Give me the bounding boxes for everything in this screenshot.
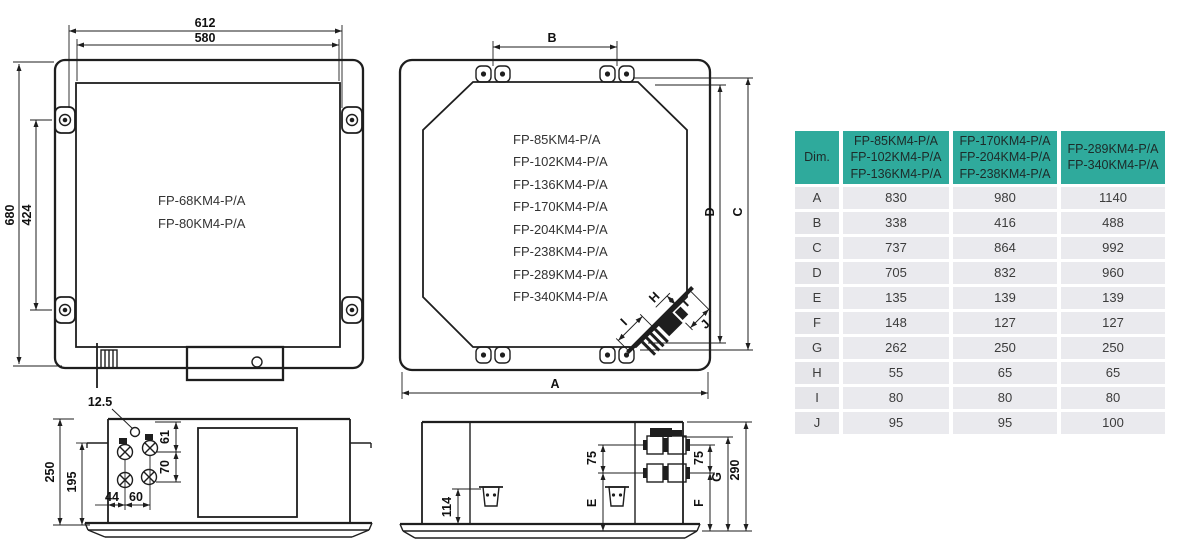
dim-value: 250 bbox=[953, 337, 1057, 359]
dim-value: 960 bbox=[1061, 262, 1165, 284]
dim-value: 135 bbox=[843, 287, 949, 309]
dim-d: D bbox=[703, 207, 717, 216]
dim-61: 61 bbox=[158, 430, 172, 444]
mount-bracket-icon bbox=[600, 66, 634, 82]
side-view-left: 12.5 250 195 61 70 44 60 bbox=[43, 395, 372, 537]
dim-value: 65 bbox=[953, 362, 1057, 384]
table-row: A 830 980 1140 bbox=[795, 187, 1165, 209]
front-view: 612 580 680 424 FP-68KM4-P/A FP-80KM4-P/… bbox=[3, 16, 363, 388]
dim-114: 114 bbox=[440, 497, 454, 517]
hanger-bracket bbox=[605, 487, 629, 506]
dim-label: G bbox=[795, 337, 839, 359]
dim-75-right: 75 bbox=[692, 451, 706, 465]
dim-c: C bbox=[731, 207, 745, 216]
dimension-drawings: 612 580 680 424 FP-68KM4-P/A FP-80KM4-P/… bbox=[0, 0, 790, 554]
dim-value: 95 bbox=[953, 412, 1057, 434]
table-row: E 135 139 139 bbox=[795, 287, 1165, 309]
dim-value: 832 bbox=[953, 262, 1057, 284]
model-label: FP-85KM4-P/A bbox=[513, 132, 601, 147]
dim-label: E bbox=[795, 287, 839, 309]
dim-label: A bbox=[795, 187, 839, 209]
model-label: FP-340KM4-P/A bbox=[513, 289, 608, 304]
dim-outer-width: 612 bbox=[195, 16, 216, 30]
dim-value: 55 bbox=[843, 362, 949, 384]
dim-g: G bbox=[710, 472, 724, 482]
mount-bracket-icon bbox=[476, 66, 510, 82]
dim-44: 44 bbox=[105, 490, 119, 504]
dim-bracket-span: 424 bbox=[20, 205, 34, 226]
col-header-dim: Dim. bbox=[795, 131, 839, 184]
dim-value: 262 bbox=[843, 337, 949, 359]
dim-value: 139 bbox=[953, 287, 1057, 309]
model-label: FP-80KM4-P/A bbox=[158, 216, 246, 231]
dim-value: 864 bbox=[953, 237, 1057, 259]
mount-bracket-icon bbox=[55, 297, 75, 323]
table-row: B 338 416 488 bbox=[795, 212, 1165, 234]
mount-bracket-icon bbox=[342, 107, 362, 133]
table-row: D 705 832 960 bbox=[795, 262, 1165, 284]
dim-250: 250 bbox=[43, 462, 57, 483]
dim-value: 80 bbox=[1061, 387, 1165, 409]
col-header-models-3: FP-289KM4-P/A FP-340KM4-P/A bbox=[1061, 131, 1165, 184]
table-row: G 262 250 250 bbox=[795, 337, 1165, 359]
dim-i: I bbox=[618, 316, 630, 328]
dim-value: 127 bbox=[1061, 312, 1165, 334]
dim-value: 250 bbox=[1061, 337, 1165, 359]
technical-drawing-page: { "colors": { "line": "#1e1e1e", "table_… bbox=[0, 0, 1200, 554]
dim-value: 830 bbox=[843, 187, 949, 209]
dim-value: 148 bbox=[843, 312, 949, 334]
dim-value: 139 bbox=[1061, 287, 1165, 309]
dim-value: 416 bbox=[953, 212, 1057, 234]
pipe-connections: H I J bbox=[606, 266, 723, 383]
dim-60: 60 bbox=[129, 490, 143, 504]
dim-value: 737 bbox=[843, 237, 949, 259]
control-box bbox=[187, 347, 283, 380]
col-header-models-2: FP-170KM4-P/A FP-204KM4-P/A FP-238KM4-P/… bbox=[953, 131, 1057, 184]
dim-value: 95 bbox=[843, 412, 949, 434]
table-row: H 55 65 65 bbox=[795, 362, 1165, 384]
dim-value: 100 bbox=[1061, 412, 1165, 434]
model-label: FP-170KM4-P/A bbox=[513, 199, 608, 214]
dim-panel-width: 580 bbox=[195, 31, 216, 45]
pipe-valve-icon bbox=[118, 445, 133, 460]
model-label: FP-102KM4-P/A bbox=[513, 154, 608, 169]
dim-f: F bbox=[692, 499, 706, 507]
mount-bracket-icon bbox=[476, 347, 510, 363]
dim-b: B bbox=[547, 31, 556, 45]
table-row: C 737 864 992 bbox=[795, 237, 1165, 259]
dim-outer-height: 680 bbox=[3, 205, 17, 226]
dim-value: 65 bbox=[1061, 362, 1165, 384]
dim-value: 705 bbox=[843, 262, 949, 284]
dim-75-left: 75 bbox=[585, 451, 599, 465]
plan-body-octagon bbox=[423, 82, 687, 347]
dimension-table: Dim. FP-85KM4-P/A FP-102KM4-P/A FP-136KM… bbox=[791, 128, 1169, 437]
model-label: FP-136KM4-P/A bbox=[513, 177, 608, 192]
dim-value: 80 bbox=[843, 387, 949, 409]
model-label: FP-289KM4-P/A bbox=[513, 267, 608, 282]
model-label: FP-68KM4-P/A bbox=[158, 193, 246, 208]
model-label: FP-238KM4-P/A bbox=[513, 244, 608, 259]
model-label: FP-204KM4-P/A bbox=[513, 222, 608, 237]
pipe-valve-icon bbox=[142, 470, 157, 485]
dim-label: D bbox=[795, 262, 839, 284]
dim-label: H bbox=[795, 362, 839, 384]
col-header-models-1: FP-85KM4-P/A FP-102KM4-P/A FP-136KM4-P/A bbox=[843, 131, 949, 184]
dim-e: E bbox=[585, 499, 599, 507]
mount-bracket-icon bbox=[55, 107, 75, 133]
dim-value: 80 bbox=[953, 387, 1057, 409]
dim-label: C bbox=[795, 237, 839, 259]
dim-label: F bbox=[795, 312, 839, 334]
dim-value: 127 bbox=[953, 312, 1057, 334]
table-row: J 95 95 100 bbox=[795, 412, 1165, 434]
dim-a: A bbox=[550, 377, 559, 391]
front-outer-frame bbox=[55, 60, 363, 368]
dim-label: B bbox=[795, 212, 839, 234]
electrical-box bbox=[198, 428, 297, 517]
dim-value: 338 bbox=[843, 212, 949, 234]
dim-value: 488 bbox=[1061, 212, 1165, 234]
dim-value: 1140 bbox=[1061, 187, 1165, 209]
dim-value: 980 bbox=[953, 187, 1057, 209]
front-panel-face bbox=[76, 83, 340, 347]
dim-hole: 12.5 bbox=[88, 395, 112, 409]
table-row: F 148 127 127 bbox=[795, 312, 1165, 334]
table-header-row: Dim. FP-85KM4-P/A FP-102KM4-P/A FP-136KM… bbox=[795, 131, 1165, 184]
dim-label: J bbox=[795, 412, 839, 434]
control-box-hole bbox=[252, 357, 262, 367]
plan-view: B A D C FP-85KM4-P/A FP-102KM4-P/A FP-13… bbox=[400, 31, 753, 399]
dim-value: 992 bbox=[1061, 237, 1165, 259]
mount-bracket-icon bbox=[342, 297, 362, 323]
dim-195: 195 bbox=[65, 472, 79, 493]
pipe-valve-icon bbox=[143, 441, 158, 456]
side-view-mid: 114 75 E 75 F G 290 bbox=[400, 422, 752, 538]
drain-hole bbox=[131, 428, 140, 437]
dim-label: I bbox=[795, 387, 839, 409]
hanger-bracket bbox=[479, 487, 503, 506]
table-row: I 80 80 80 bbox=[795, 387, 1165, 409]
dim-70: 70 bbox=[158, 460, 172, 474]
dim-290: 290 bbox=[728, 460, 742, 481]
